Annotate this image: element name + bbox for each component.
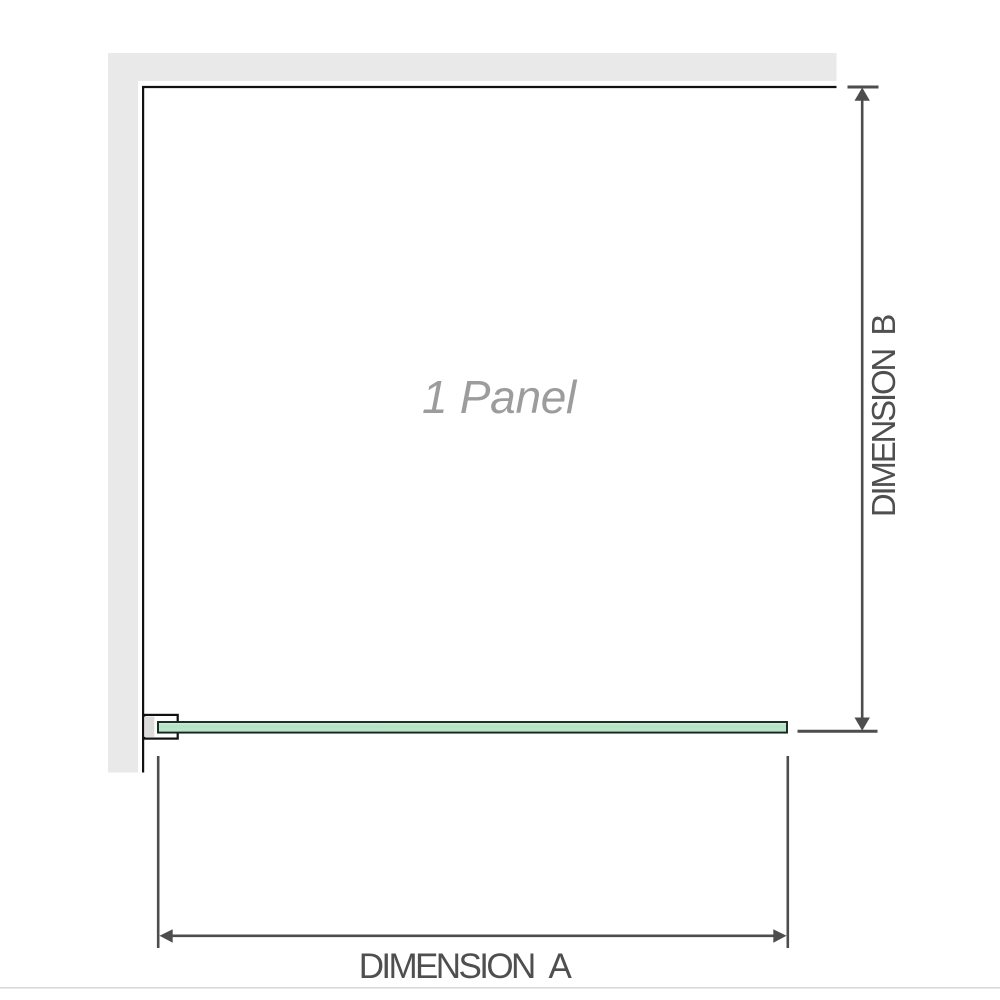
- svg-text:1 Panel: 1 Panel: [422, 371, 578, 423]
- svg-text:DIMENSION B: DIMENSION B: [865, 315, 902, 518]
- svg-text:DIMENSION A: DIMENSION A: [359, 947, 573, 986]
